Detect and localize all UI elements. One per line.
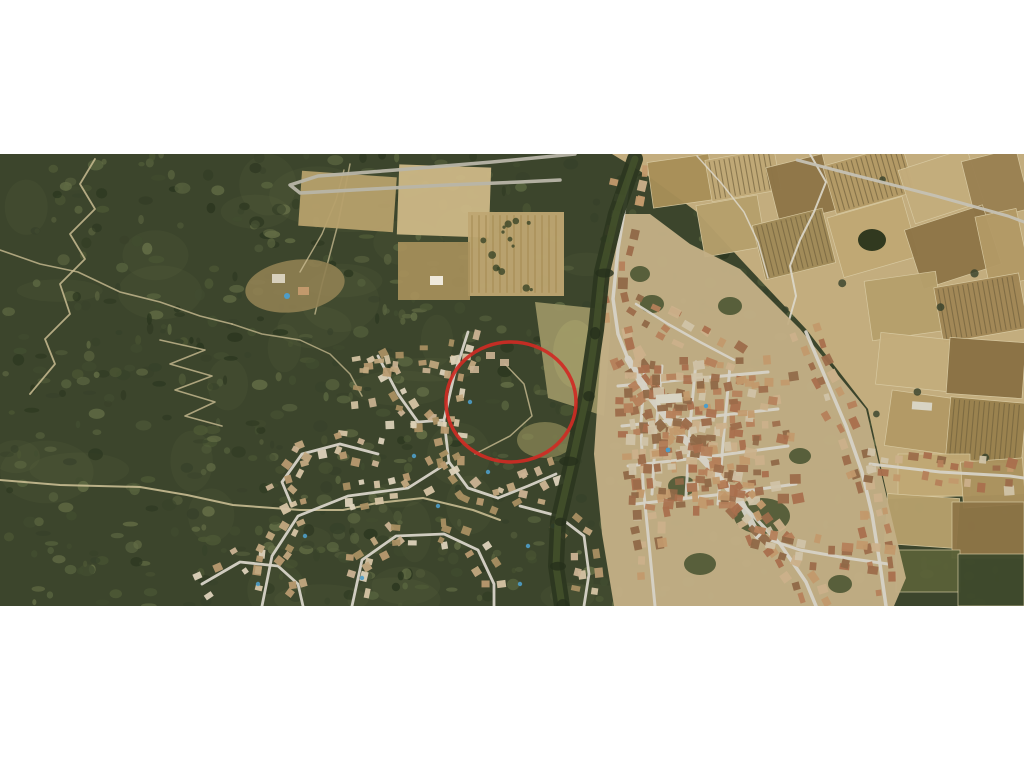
top-margin bbox=[0, 0, 1024, 154]
screenshot-root bbox=[0, 0, 1024, 768]
satellite-image bbox=[0, 154, 1024, 606]
aerial-photo bbox=[0, 154, 1024, 606]
bottom-margin bbox=[0, 606, 1024, 768]
